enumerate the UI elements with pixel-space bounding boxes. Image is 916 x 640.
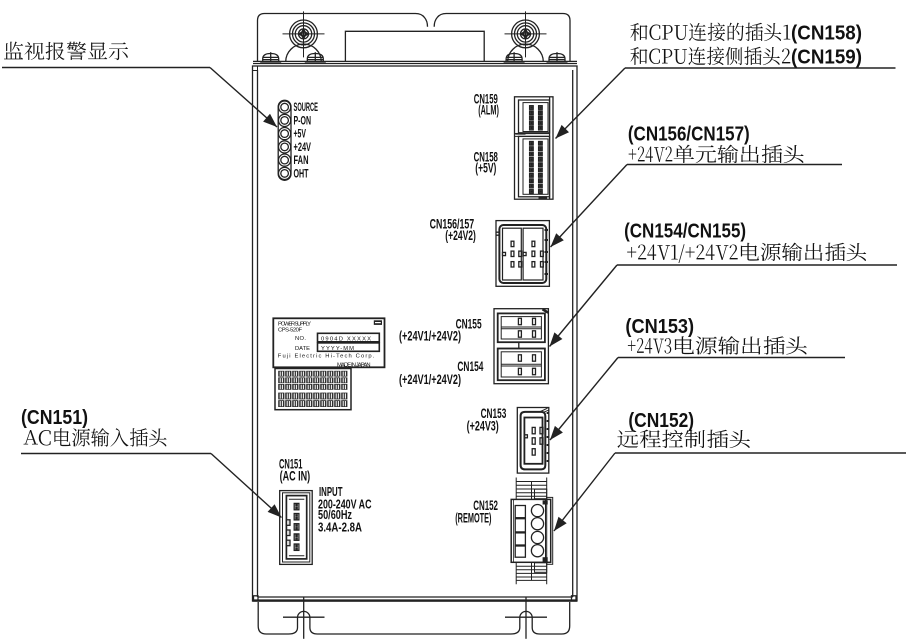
svg-text:远程控制插头: 远程控制插头 <box>617 424 751 453</box>
svg-text:CPS-520F: CPS-520F <box>278 327 302 333</box>
svg-text:CN154: CN154 <box>457 359 483 374</box>
svg-text:OHT: OHT <box>294 168 309 180</box>
svg-text:3.4A-2.8A: 3.4A-2.8A <box>318 521 362 535</box>
svg-text:+5V: +5V <box>294 129 307 141</box>
svg-text:P-ON: P-ON <box>294 115 312 127</box>
svg-text:(+24V1/+24V2): (+24V1/+24V2) <box>399 328 461 343</box>
svg-text:NO.: NO. <box>295 336 306 342</box>
svg-text:监视报警显示: 监视报警显示 <box>3 36 129 65</box>
svg-text:+24V2单元输出插头: +24V2单元输出插头 <box>628 139 805 168</box>
svg-text:YYYY-MM: YYYY-MM <box>321 346 354 352</box>
svg-text:AC电源输入插头: AC电源输入插头 <box>23 422 168 451</box>
svg-text:(ALM): (ALM) <box>478 102 499 117</box>
svg-text:MADE IN JAPAN: MADE IN JAPAN <box>337 362 371 368</box>
svg-text:(REMOTE): (REMOTE) <box>455 510 491 525</box>
svg-text:DATE: DATE <box>295 346 310 352</box>
svg-text:+24V1/+24V2电源输出插头: +24V1/+24V2电源输出插头 <box>626 237 867 266</box>
svg-text:(AC IN): (AC IN) <box>280 469 311 484</box>
svg-text:0904D XXXXX: 0904D XXXXX <box>321 336 371 342</box>
svg-text:FAN: FAN <box>294 155 309 167</box>
svg-text:(+24V1/+24V2): (+24V1/+24V2) <box>399 372 461 387</box>
svg-text:(+24V3): (+24V3) <box>467 419 499 434</box>
svg-text:和CPU连接侧插头2(CN159): 和CPU连接侧插头2(CN159) <box>630 41 862 70</box>
svg-text:+24V: +24V <box>294 142 312 154</box>
svg-text:Fuji Electric Hi-Tech Corp.: Fuji Electric Hi-Tech Corp. <box>278 354 375 360</box>
svg-text:SOURCE: SOURCE <box>294 102 319 114</box>
svg-text:POWER SUPPLY: POWER SUPPLY <box>278 321 311 327</box>
svg-text:+24V3电源输出插头: +24V3电源输出插头 <box>627 330 808 359</box>
svg-text:(+5V): (+5V) <box>475 161 496 176</box>
svg-text:(+24V2): (+24V2) <box>445 228 476 243</box>
